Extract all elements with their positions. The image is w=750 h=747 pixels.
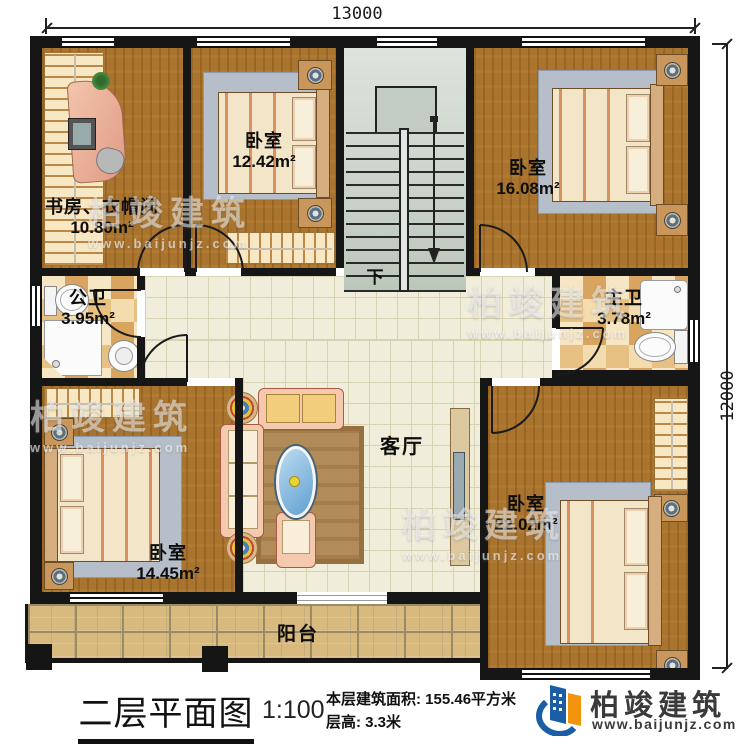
room-label-bedroom-b: 卧室 16.08m² <box>478 158 578 198</box>
bedroom-d-wardrobe <box>654 398 688 492</box>
nightstand-decor-icon <box>664 212 681 229</box>
sink-icon <box>108 340 140 372</box>
wall-interior <box>241 268 336 276</box>
room-area: 12.42m² <box>208 152 320 172</box>
room-name: 阳台 <box>277 624 319 645</box>
room-name: 主卫 <box>576 288 672 309</box>
balcony-post <box>202 646 228 672</box>
nightstand <box>44 562 74 590</box>
pillow <box>626 94 650 142</box>
room-name: 卧室 <box>208 131 320 152</box>
room-label-balcony: 阳台 <box>266 624 330 646</box>
wall-interior <box>185 268 196 276</box>
stair-steps-right <box>409 132 464 288</box>
toilet-tank <box>674 330 688 364</box>
brand-logo-icon <box>536 680 586 736</box>
wall-stairs-bedroom-b <box>466 48 474 268</box>
floor-plan-page: 书房、衣帽间 10.80m² 卧室 12.42m² 卧室 16.08m² 公卫 … <box>0 0 750 747</box>
sofa-cushion <box>302 394 336 423</box>
room-area: 14.45m² <box>116 564 220 584</box>
room-label-master-bath: 主卫 3.78m² <box>576 288 672 328</box>
wall-bedroom-c-north <box>145 378 187 386</box>
room-label-bedroom-d: 卧室 22.02m² <box>476 494 576 534</box>
plan-stats: 本层建筑面积: 155.46平方米 层高: 3.3米 <box>326 688 516 735</box>
tv-icon <box>453 452 465 520</box>
wall-public-bath-south <box>42 378 145 386</box>
window <box>70 592 163 604</box>
armchair-cushion <box>282 520 310 554</box>
stair-center-rail <box>399 128 409 292</box>
nightstand-decor-icon <box>664 62 681 79</box>
wall-master-bath-west <box>552 276 560 328</box>
bed-headboard <box>650 84 664 206</box>
wall-master-bath-south <box>552 370 700 378</box>
wall-corner <box>235 378 243 386</box>
sofa-cushion <box>228 496 258 529</box>
stairs-down-label: 下 <box>362 268 388 288</box>
room-label-bedroom-a: 卧室 12.42m² <box>208 131 320 171</box>
hallway-floor-east <box>480 340 552 378</box>
brand-url: www.baijunjz.com <box>592 716 737 732</box>
room-area: 22.02m² <box>476 515 576 535</box>
stair-well-outline <box>375 86 437 134</box>
nightstand <box>656 54 688 86</box>
room-name: 公卫 <box>36 288 140 309</box>
stair-steps-left <box>346 132 399 288</box>
room-label-study: 书房、衣帽间 10.80m² <box>16 197 188 237</box>
pillow <box>60 506 84 554</box>
dimension-line-right <box>726 44 728 668</box>
hallway-floor-west <box>145 340 243 378</box>
plan-scale: 1:100 <box>262 696 325 725</box>
room-area: 3.95m² <box>36 309 140 329</box>
dimension-extension <box>712 667 728 669</box>
wall-bedroom-a-stairs <box>336 48 344 268</box>
room-name: 卧室 <box>478 158 578 179</box>
dimension-extension <box>694 18 696 34</box>
sofa-cushion <box>228 463 258 496</box>
nightstand-decor-icon <box>307 67 324 84</box>
nightstand <box>44 418 74 446</box>
nightstand-decor-icon <box>307 205 324 222</box>
window <box>522 36 645 48</box>
room-label-public-bath: 公卫 3.95m² <box>36 288 140 328</box>
room-area: 16.08m² <box>478 179 578 199</box>
room-name: 客厅 <box>380 436 424 458</box>
pillow <box>624 572 648 630</box>
dimension-extension <box>45 18 47 34</box>
wall-interior <box>466 268 480 276</box>
balcony-post <box>26 644 52 670</box>
dimension-line-top <box>46 27 696 29</box>
wall-bedroom-d-north <box>480 378 492 386</box>
dimension-extension <box>712 43 728 45</box>
toilet-icon <box>634 332 676 362</box>
shower-drain-icon <box>674 286 681 293</box>
room-name: 卧室 <box>476 494 576 515</box>
nightstand <box>656 204 688 236</box>
room-name: 书房、衣帽间 <box>16 197 188 218</box>
plan-area-text: 本层建筑面积: 155.46平方米 <box>326 688 516 711</box>
nightstand-decor-icon <box>51 568 68 585</box>
pillow <box>626 146 650 194</box>
dimension-width-label: 13000 <box>322 4 392 24</box>
window <box>688 320 700 362</box>
nightstand-decor-icon <box>663 500 680 517</box>
bed-headboard <box>44 448 58 562</box>
wall-interior <box>42 268 140 276</box>
computer-monitor <box>68 118 96 150</box>
room-area: 3.78m² <box>576 309 672 329</box>
nightstand <box>298 198 332 228</box>
bed-headboard <box>648 496 662 646</box>
wall-bedroom-d-north <box>540 378 700 386</box>
room-label-bedroom-c: 卧室 14.45m² <box>116 543 220 583</box>
shower-drain-icon <box>52 360 60 368</box>
window <box>522 668 650 680</box>
stairs-down-text: 下 <box>367 268 384 287</box>
room-area: 10.80m² <box>16 218 188 238</box>
bedroom-c-wardrobe <box>44 388 140 418</box>
nightstand <box>298 60 332 90</box>
sofa-cushion <box>266 394 300 423</box>
room-name: 卧室 <box>116 543 220 564</box>
table-decor-icon <box>289 476 300 487</box>
room-label-living: 客厅 <box>366 436 438 459</box>
balcony-door-opening <box>297 592 387 604</box>
window <box>62 36 114 48</box>
plan-title: 二层平面图 <box>78 686 254 744</box>
wall-bedroom-c-east <box>235 386 243 592</box>
pillow <box>624 508 648 566</box>
sofa-cushion <box>228 430 258 463</box>
plan-floor-height-text: 层高: 3.3米 <box>326 711 516 734</box>
dimension-height-label: 12000 <box>718 366 738 426</box>
pillow <box>60 454 84 502</box>
wall-interior <box>535 268 700 276</box>
balcony-floor <box>25 604 483 663</box>
window <box>377 36 437 48</box>
window <box>197 36 290 48</box>
bedroom-a-wardrobe <box>225 232 335 264</box>
nightstand-decor-icon <box>51 424 68 441</box>
plant-icon <box>92 72 110 90</box>
